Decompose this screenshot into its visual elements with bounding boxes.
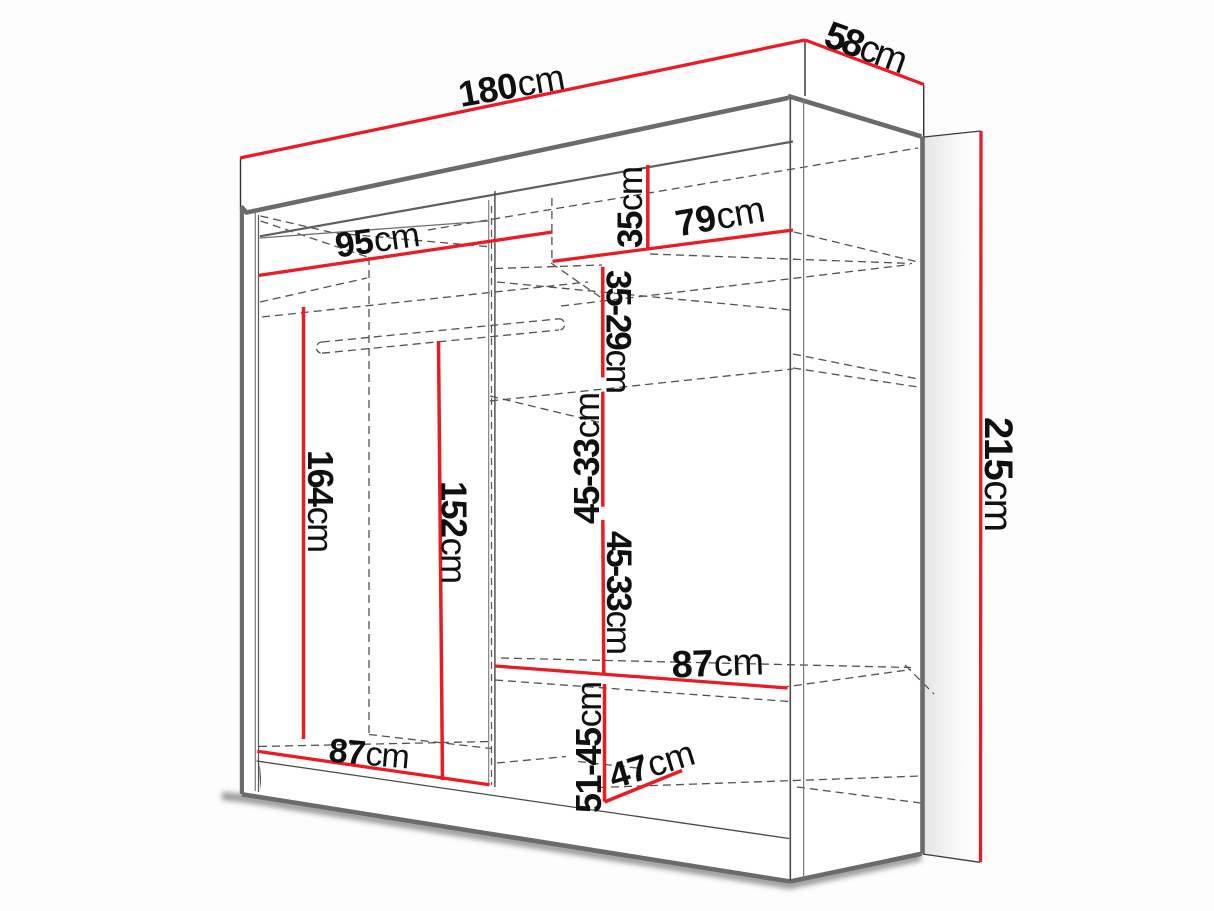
svg-text:35cm: 35cm [611,167,650,248]
svg-text:87cm: 87cm [327,732,410,777]
svg-text:45-33cm: 45-33cm [599,531,638,653]
svg-text:164cm: 164cm [300,450,341,552]
svg-text:215cm: 215cm [976,417,1020,531]
svg-text:35-29cm: 35-29cm [599,270,638,392]
svg-text:51-45cm: 51-45cm [568,682,609,813]
svg-text:87cm: 87cm [671,641,764,686]
svg-text:45-33cm: 45-33cm [566,393,607,524]
svg-text:152cm: 152cm [434,481,475,583]
